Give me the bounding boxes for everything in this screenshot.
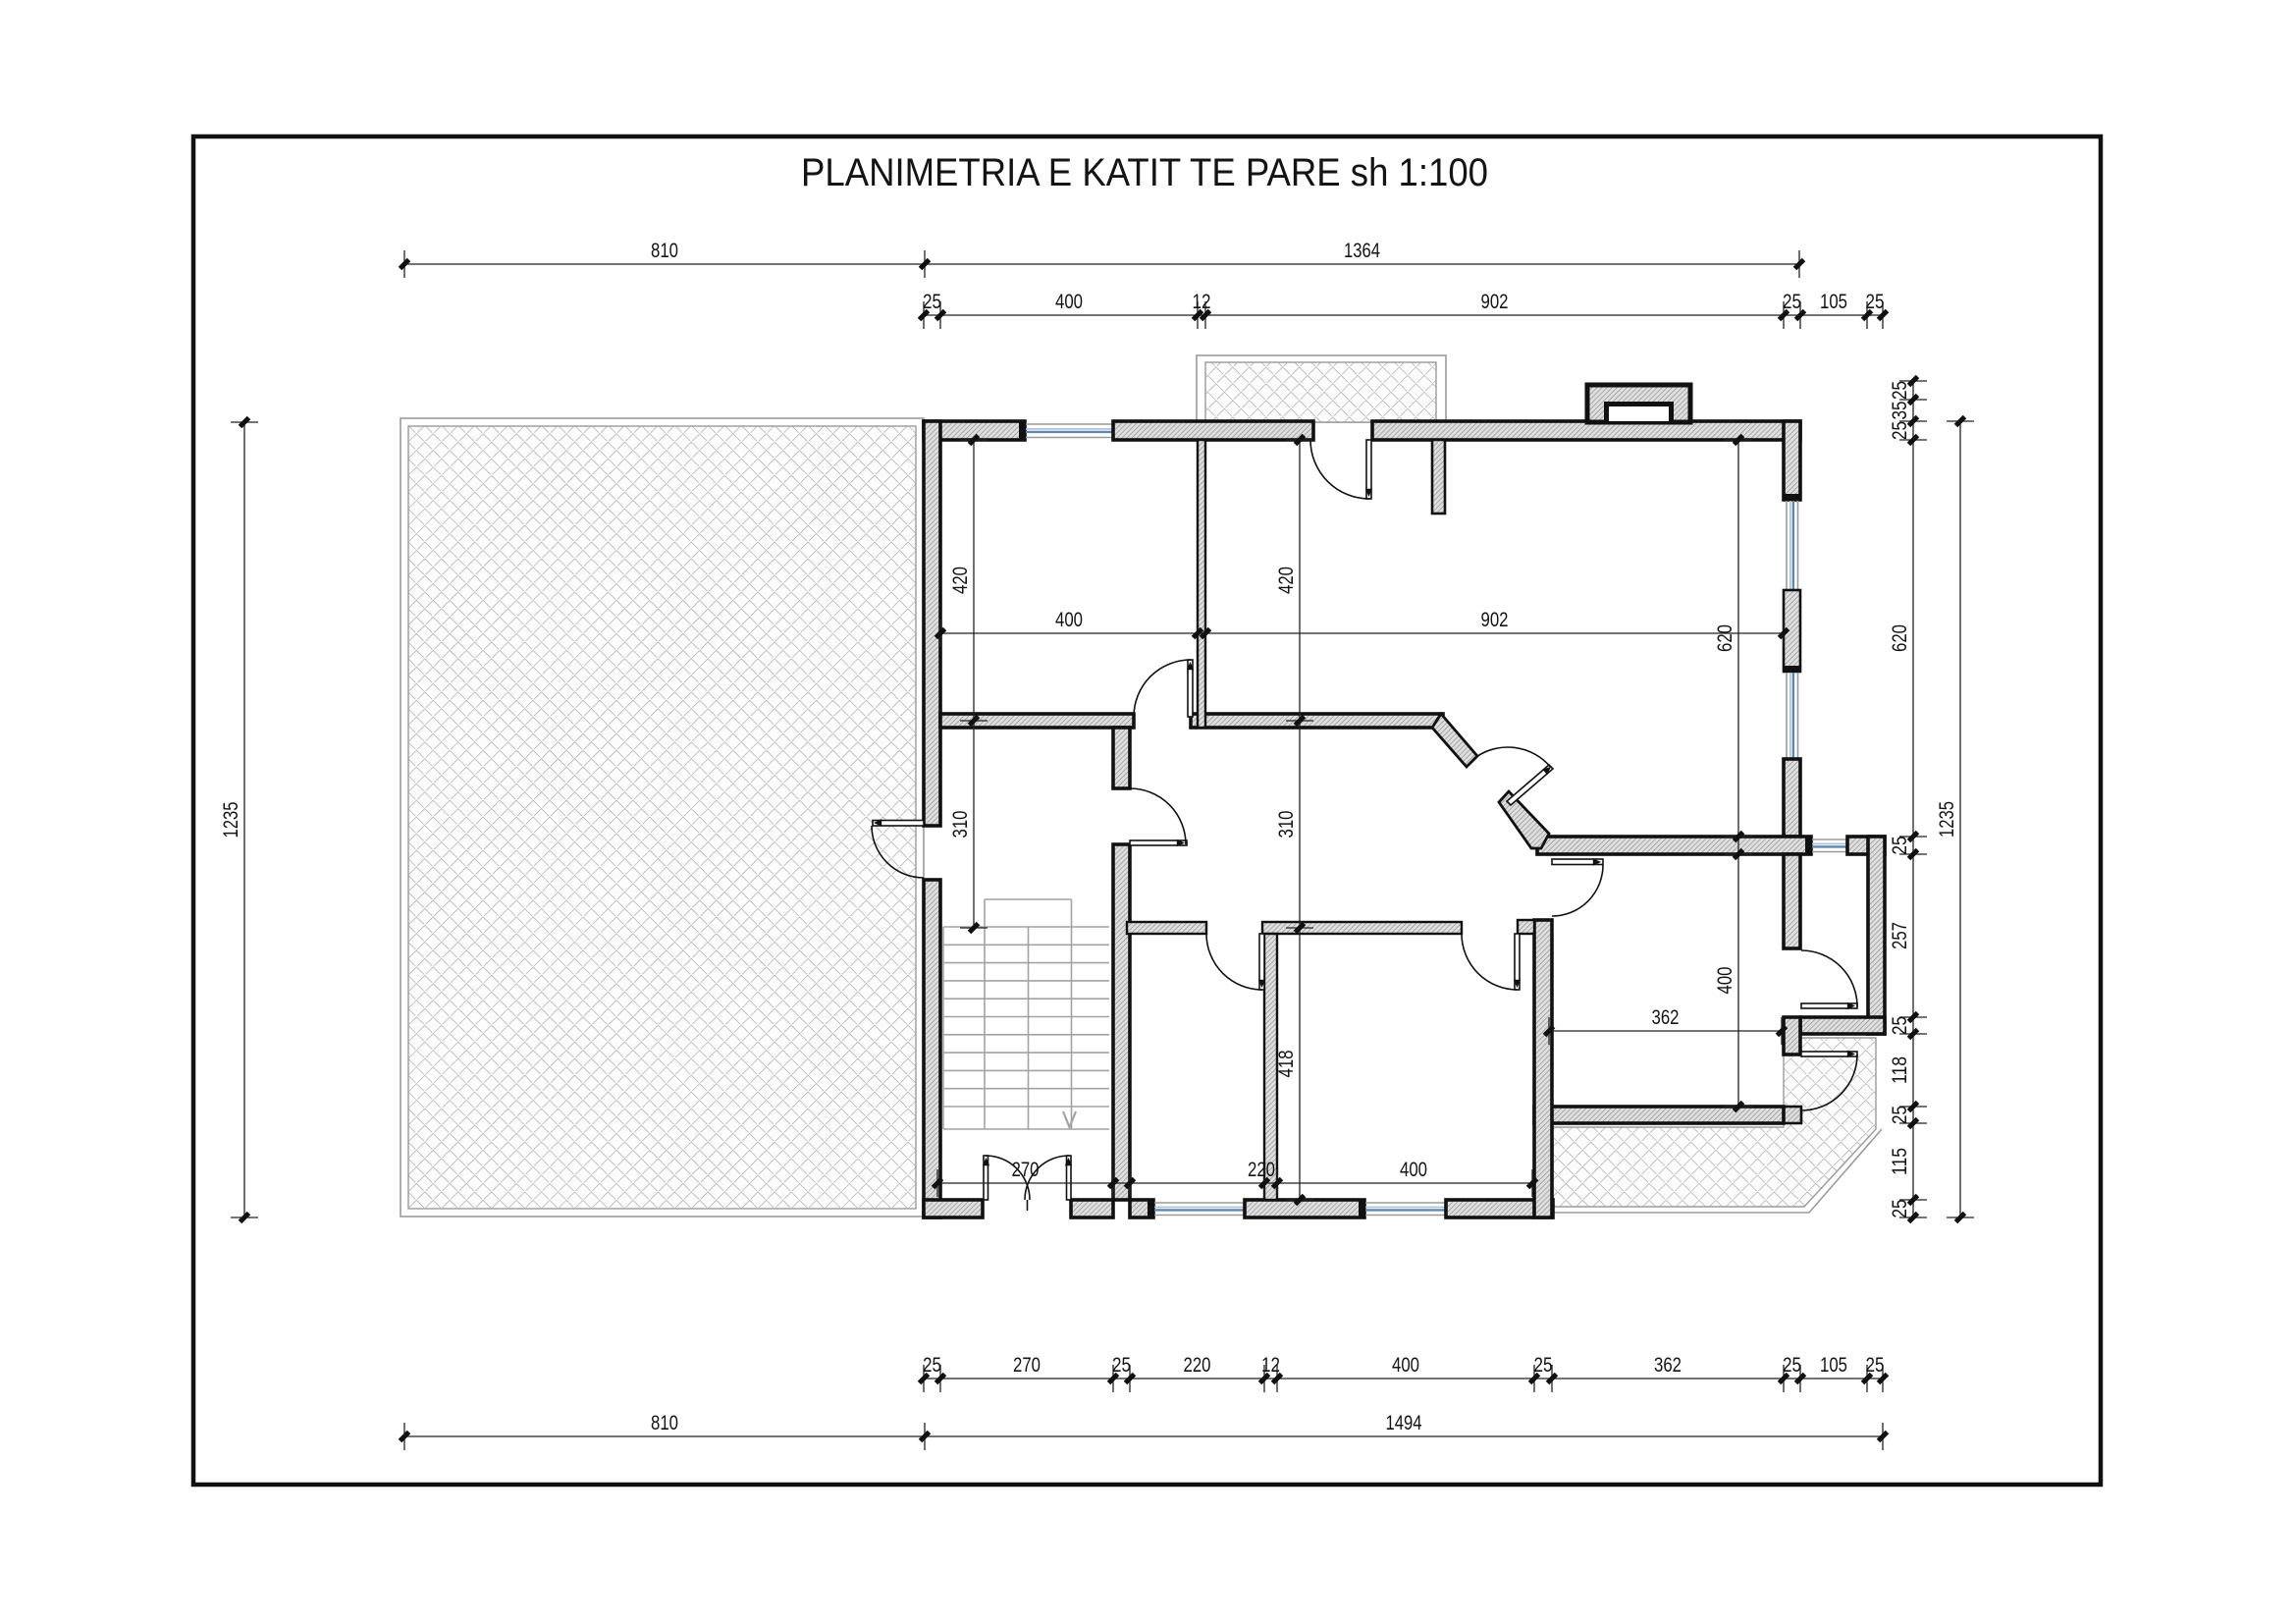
svg-text:1364: 1364 <box>1344 240 1380 262</box>
svg-text:270: 270 <box>1012 1159 1040 1181</box>
svg-text:620: 620 <box>1714 624 1736 652</box>
svg-text:400: 400 <box>1714 967 1736 995</box>
svg-text:PLANIMETRIA E KATIT TE PARE sh: PLANIMETRIA E KATIT TE PARE sh 1:100 <box>801 151 1488 194</box>
svg-text:25: 25 <box>1534 1354 1553 1377</box>
svg-text:1235: 1235 <box>220 802 242 839</box>
svg-text:25: 25 <box>1889 1106 1911 1124</box>
svg-text:25: 25 <box>1889 1200 1911 1218</box>
svg-text:25: 25 <box>1783 291 1801 313</box>
svg-text:105: 105 <box>1820 291 1847 313</box>
svg-text:25: 25 <box>1889 1016 1911 1035</box>
svg-text:25: 25 <box>1889 381 1911 400</box>
svg-text:902: 902 <box>1481 609 1509 631</box>
svg-text:25: 25 <box>1866 1354 1885 1377</box>
svg-text:220: 220 <box>1184 1354 1211 1377</box>
svg-text:620: 620 <box>1889 624 1911 652</box>
svg-text:420: 420 <box>949 567 972 594</box>
svg-text:810: 810 <box>651 1412 678 1434</box>
svg-text:810: 810 <box>651 240 678 262</box>
svg-text:257: 257 <box>1889 922 1911 949</box>
svg-text:310: 310 <box>949 811 972 839</box>
svg-text:118: 118 <box>1889 1056 1911 1084</box>
svg-text:35: 35 <box>1889 402 1911 420</box>
svg-text:1494: 1494 <box>1386 1412 1422 1434</box>
svg-text:310: 310 <box>1275 811 1298 839</box>
svg-text:25: 25 <box>1112 1354 1131 1377</box>
svg-text:105: 105 <box>1820 1354 1847 1377</box>
svg-text:902: 902 <box>1481 291 1509 313</box>
svg-text:362: 362 <box>1652 1006 1680 1029</box>
svg-text:400: 400 <box>1400 1159 1427 1181</box>
svg-text:12: 12 <box>1193 291 1211 313</box>
svg-text:220: 220 <box>1248 1159 1275 1181</box>
svg-text:25: 25 <box>1889 837 1911 855</box>
svg-text:400: 400 <box>1392 1354 1419 1377</box>
svg-text:418: 418 <box>1275 1051 1298 1078</box>
svg-text:400: 400 <box>1055 291 1083 313</box>
svg-text:362: 362 <box>1654 1354 1682 1377</box>
svg-text:25: 25 <box>1783 1354 1801 1377</box>
svg-text:25: 25 <box>923 1354 941 1377</box>
svg-text:1235: 1235 <box>1936 801 1958 838</box>
svg-text:25: 25 <box>1866 291 1885 313</box>
svg-text:25: 25 <box>923 291 941 313</box>
svg-text:115: 115 <box>1889 1148 1911 1175</box>
svg-text:25: 25 <box>1889 421 1911 440</box>
svg-text:12: 12 <box>1261 1354 1280 1377</box>
svg-text:420: 420 <box>1275 567 1298 594</box>
svg-text:270: 270 <box>1013 1354 1041 1377</box>
svg-text:400: 400 <box>1055 609 1083 631</box>
